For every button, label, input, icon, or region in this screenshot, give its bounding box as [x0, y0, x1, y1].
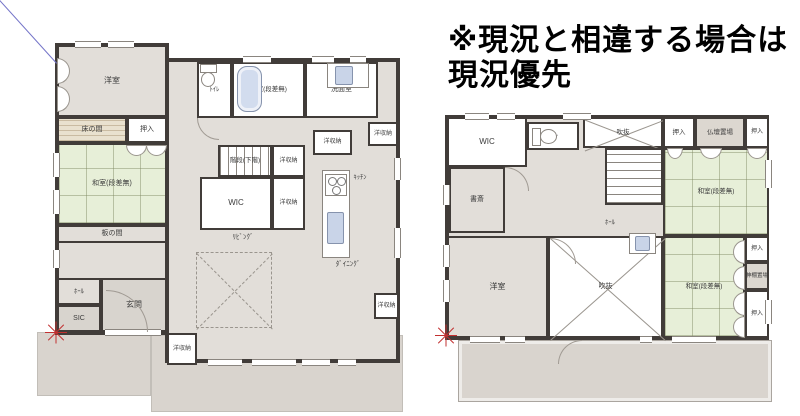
- label-kitchen-label: ｷｯﾁﾝ: [354, 174, 367, 181]
- room-yoshuno-e-label: 洋収納: [377, 303, 395, 310]
- toilet-part: [540, 129, 557, 144]
- room-yoshuno-c: 洋収納: [313, 130, 352, 155]
- floor2-window-4: [443, 245, 450, 267]
- floor2-toilet-icon-0: [532, 128, 556, 144]
- floor1-survey-cross-mark-0: [45, 322, 67, 344]
- room-kamidana-label: 神棚置場: [746, 273, 768, 279]
- burner-1: [337, 177, 346, 186]
- floor1-bathtub-icon-1: [237, 66, 262, 112]
- room-washitsu-1f: 和室(段差無): [57, 143, 167, 225]
- room-yoshuno-a: 洋収納: [272, 145, 305, 177]
- label-hall-2f: ﾎｰﾙ: [595, 217, 625, 229]
- room-sic-label: SIC: [73, 315, 85, 323]
- room-yoshuno-entrance: 洋収納: [167, 333, 197, 365]
- floor2-window-7: [765, 300, 772, 324]
- room-butsudan-label: 仏壇置場: [707, 129, 733, 136]
- floor2-window-6: [765, 160, 772, 188]
- room-yoshitsu-1f: 洋室: [57, 45, 167, 117]
- label-living-label: ﾘﾋﾞﾝｸﾞ: [233, 234, 254, 242]
- label-dining-label: ﾀﾞｲﾆﾝｸﾞ: [336, 261, 361, 269]
- floor1-window-5: [208, 359, 242, 366]
- floor1-window-13: [53, 190, 60, 214]
- room-yoshitsu-1f-label: 洋室: [104, 77, 120, 86]
- room-oshiire-2f-d-label: 押入: [751, 311, 763, 318]
- floor1-window-11: [394, 228, 401, 258]
- floor1-sink-icon-6: [327, 212, 344, 244]
- floor1-sink-icon-3: [335, 66, 353, 85]
- room-oshiire-2f-b: 押入: [745, 117, 769, 148]
- floor2-window-10: [640, 336, 652, 343]
- floor2-window-5: [443, 280, 450, 302]
- room-shosai: 書斎: [449, 167, 505, 233]
- room-hall-1f-label: ﾎｰﾙ: [74, 288, 84, 295]
- room-stairs-1f: 階段(下階): [218, 145, 272, 177]
- floor1-stove-icon-5: [325, 174, 347, 196]
- room-oshiire-1f: 押入: [127, 117, 167, 143]
- room-oshiire-2f-b-label: 押入: [751, 129, 763, 136]
- floor1-window-1: [108, 41, 134, 48]
- floor2-window-8: [470, 336, 500, 343]
- room-tokonoma-label: 床の間: [82, 126, 103, 134]
- floor1-window-4: [350, 56, 366, 63]
- label-hall-2f-label: ﾎｰﾙ: [605, 219, 615, 226]
- floor1-window-14: [53, 250, 60, 268]
- room-yoshitsu-2f-label: 洋室: [490, 283, 506, 292]
- room-yoshuno-d-label: 洋収納: [374, 131, 392, 138]
- room-stairs-2f: [605, 148, 663, 205]
- floor1-window-7: [302, 359, 330, 366]
- notice-text: ※現況と相違する場合は 現況優先: [448, 24, 796, 93]
- room-kamidana: 神棚置場: [745, 262, 769, 290]
- room-yoshuno-c-label: 洋収納: [323, 139, 341, 146]
- room-oshiire-2f-c: 押入: [745, 236, 769, 262]
- living-void-outline: [196, 252, 272, 328]
- room-wic-2f: WIC: [447, 117, 527, 167]
- room-hall-1f: ﾎｰﾙ: [57, 278, 101, 305]
- floor1-window-3: [312, 56, 334, 63]
- notice-line-2: 現況優先: [448, 59, 796, 94]
- room-yoshuno-entrance-label: 洋収納: [173, 346, 191, 353]
- room-washitsu-2f-upper: 和室(段差無): [663, 148, 769, 236]
- room-wic-1f-label: WIC: [228, 199, 244, 208]
- floor2-survey-cross-mark-0: [435, 325, 457, 347]
- room-oshiire-2f-c-label: 押入: [751, 246, 763, 253]
- room-washitsu-2f-lower-label: 和室(段差無): [686, 283, 723, 290]
- floor1-window-0: [75, 41, 101, 48]
- floor1-window-2: [243, 56, 271, 63]
- room-itanoma: 板の間: [57, 225, 167, 243]
- burner-0: [328, 177, 337, 186]
- balcony: [458, 340, 772, 402]
- floor2-window-11: [672, 336, 716, 343]
- room-yoshuno-e: 洋収納: [374, 293, 399, 319]
- room-washitsu-2f-upper-label: 和室(段差無): [698, 188, 735, 195]
- room-yoshuno-a-label: 洋収納: [279, 158, 297, 165]
- toilet-part: [201, 72, 215, 87]
- room-yoshuno-b-label: 洋収納: [279, 200, 297, 207]
- label-living: ﾘﾋﾞﾝｸﾞ: [213, 232, 273, 244]
- floor2-window-9: [505, 336, 525, 343]
- label-dining: ﾀﾞｲﾆﾝｸﾞ: [318, 259, 378, 271]
- room-itanoma-label: 板の間: [102, 230, 123, 238]
- floor2-window-3: [443, 185, 450, 205]
- room-void-top: 吹抜: [583, 117, 663, 148]
- floor1-window-12: [53, 153, 60, 177]
- room-oshiire-2f-a: 押入: [663, 117, 695, 148]
- floor2-window-2: [563, 113, 591, 120]
- room-butsudan: 仏壇置場: [695, 117, 745, 148]
- floor1-toilet-icon-0: [200, 64, 215, 86]
- room-oshiire-2f-a-label: 押入: [673, 129, 686, 136]
- room-yoshuno-b: 洋収納: [272, 177, 305, 230]
- burner-2: [332, 186, 341, 195]
- floor2-window-0: [465, 113, 489, 120]
- floorplan-canvas: 洋室床の間押入和室(段差無)板の間ﾎｰﾙSIC玄関洋収納ﾄｲﾚ浴室(段差無)洗面…: [0, 0, 800, 416]
- floor2-window-1: [497, 113, 515, 120]
- floor1-window-10: [394, 158, 401, 180]
- room-tokonoma: 床の間: [57, 117, 127, 143]
- room-toilet-1f-label: ﾄｲﾚ: [210, 86, 220, 93]
- room-stairs-1f-label: 階段(下階): [230, 157, 260, 164]
- diagonal-blue-line: [0, 0, 57, 64]
- room-washitsu-1f-label: 和室(段差無): [92, 180, 132, 188]
- room-yoshuno-d: 洋収納: [368, 122, 398, 146]
- floor2-sink-icon-2: [635, 236, 650, 251]
- floor1-window-6: [252, 359, 296, 366]
- room-void-bottom-label: 吹抜: [599, 283, 613, 291]
- room-shosai-label: 書斎: [470, 196, 484, 204]
- floor1-window-8: [338, 359, 356, 366]
- room-yoshitsu-2f: 洋室: [447, 236, 548, 338]
- room-oshiire-1f-label: 押入: [140, 126, 154, 134]
- room-void-top-label: 吹抜: [617, 129, 630, 136]
- room-wic-1f: WIC: [200, 177, 272, 230]
- notice-line-1: ※現況と相違する場合は: [448, 24, 796, 59]
- room-wic-2f-label: WIC: [479, 138, 495, 147]
